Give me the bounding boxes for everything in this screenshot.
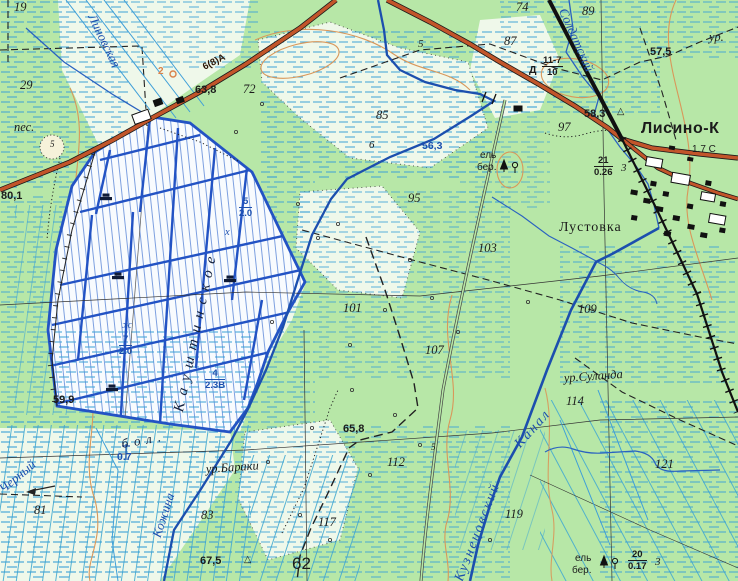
map-canvas [0, 0, 738, 581]
sand-pit-symbol [40, 135, 64, 159]
topographic-map: 1929пес.5263,8726(8)А8574878957,5ур.58,3… [0, 0, 738, 581]
